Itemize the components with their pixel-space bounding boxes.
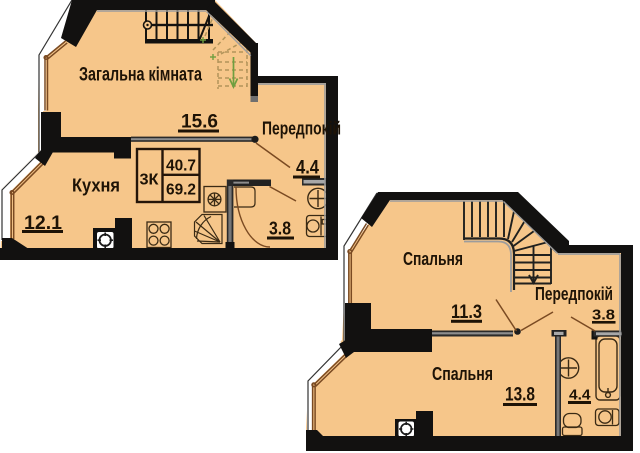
svg-text:Спальня: Спальня <box>403 249 463 269</box>
svg-text:Передпокій: Передпокій <box>535 284 613 304</box>
svg-text:Кухня: Кухня <box>72 176 120 196</box>
svg-text:Передпокій: Передпокій <box>262 119 341 139</box>
svg-text:13.8: 13.8 <box>505 385 535 406</box>
svg-text:Спальня: Спальня <box>432 364 493 384</box>
svg-text:3.8: 3.8 <box>269 219 291 239</box>
svg-text:3.8: 3.8 <box>592 307 615 324</box>
svg-text:3К: 3К <box>140 172 159 189</box>
svg-text:Загальна кімната: Загальна кімната <box>79 65 202 86</box>
svg-text:69.2: 69.2 <box>166 182 196 199</box>
svg-text:4.4: 4.4 <box>296 158 319 179</box>
svg-text:15.6: 15.6 <box>181 112 218 133</box>
svg-text:4.4: 4.4 <box>569 387 591 404</box>
svg-text:40.7: 40.7 <box>166 158 196 175</box>
